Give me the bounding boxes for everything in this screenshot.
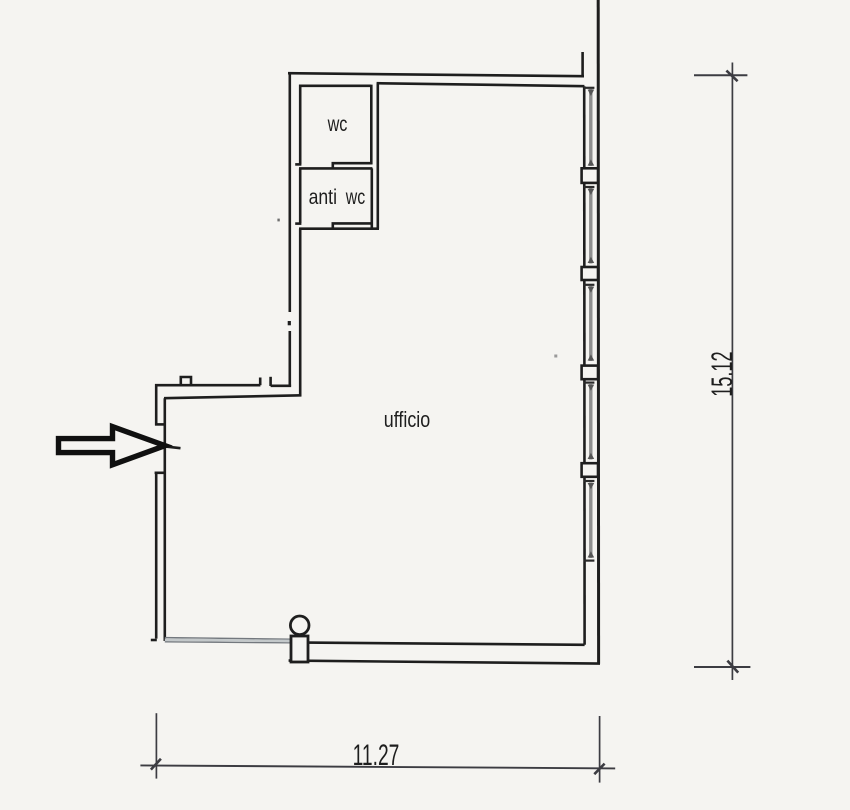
svg-text:15.12: 15.12 bbox=[706, 351, 739, 396]
svg-text:anti: anti bbox=[309, 186, 337, 209]
svg-text:wc: wc bbox=[345, 186, 365, 209]
svg-text:11.27: 11.27 bbox=[353, 739, 400, 772]
svg-text:ufficio: ufficio bbox=[384, 407, 430, 432]
svg-text:wc: wc bbox=[327, 113, 348, 136]
